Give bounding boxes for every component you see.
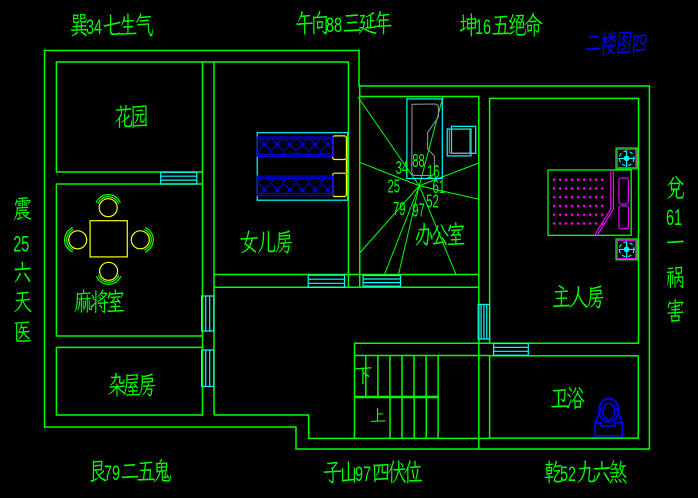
svg-text:97: 97: [355, 463, 371, 486]
svg-text:34: 34: [86, 16, 102, 39]
svg-text:88: 88: [412, 151, 425, 171]
svg-text:52: 52: [426, 191, 439, 211]
svg-text:61: 61: [666, 205, 682, 230]
svg-text:16: 16: [475, 16, 491, 39]
svg-text:79: 79: [393, 199, 406, 219]
svg-text:25: 25: [388, 177, 401, 197]
svg-text:52: 52: [560, 463, 576, 486]
svg-text:88: 88: [326, 14, 342, 37]
svg-text:79: 79: [104, 462, 120, 485]
svg-text:97: 97: [412, 201, 425, 221]
svg-text:25: 25: [13, 231, 29, 256]
svg-text:34: 34: [396, 158, 409, 178]
